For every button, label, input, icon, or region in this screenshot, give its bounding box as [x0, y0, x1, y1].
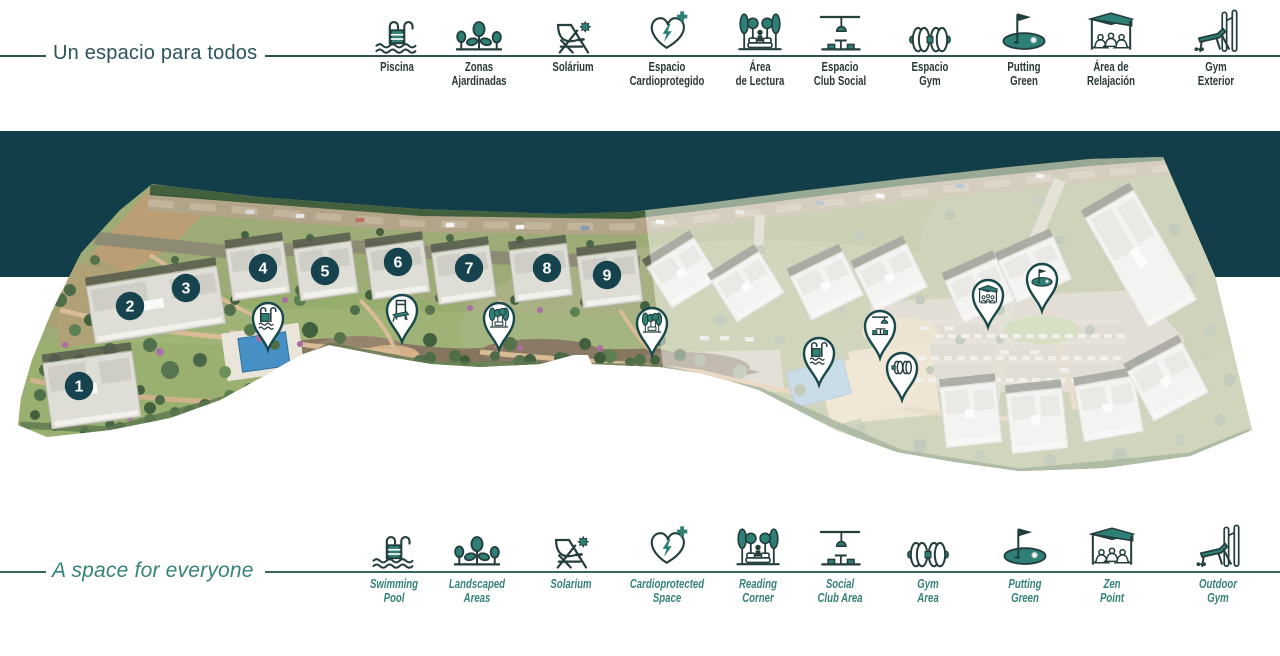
- svg-text:5: 5: [321, 264, 330, 281]
- svg-text:4: 4: [259, 261, 268, 278]
- svg-text:2: 2: [126, 299, 135, 316]
- svg-text:3: 3: [182, 281, 191, 298]
- svg-text:8: 8: [543, 261, 552, 278]
- svg-text:9: 9: [603, 268, 612, 285]
- svg-text:7: 7: [465, 261, 474, 278]
- svg-text:1: 1: [75, 379, 84, 396]
- svg-text:6: 6: [394, 255, 403, 272]
